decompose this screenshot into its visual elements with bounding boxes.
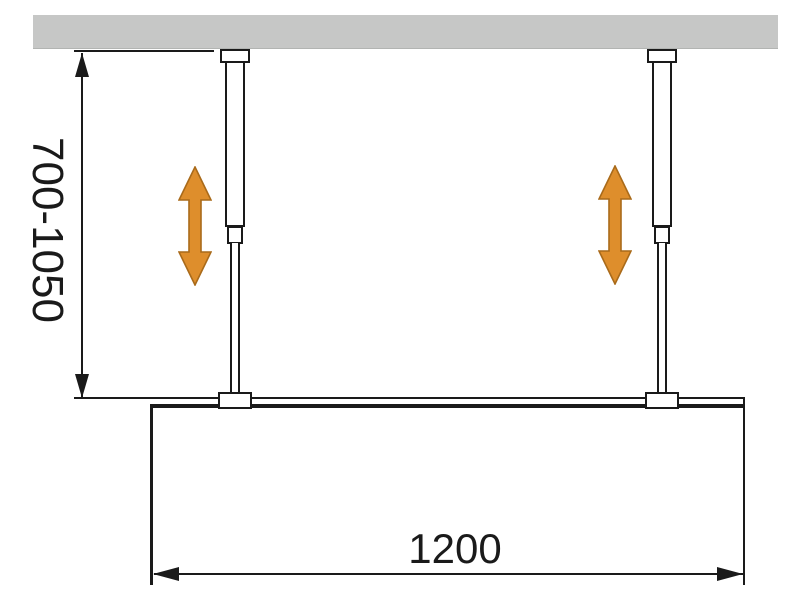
right-rod-ceiling-bracket	[647, 49, 677, 63]
ceiling-bar	[33, 15, 778, 49]
glass-left-edge	[150, 404, 153, 585]
left-rod-stem	[230, 243, 240, 393]
right-vertical-double-arrow-icon	[598, 165, 632, 285]
dimension-arrowhead-up-icon	[75, 53, 89, 77]
left-rod-upper-tube	[225, 61, 245, 227]
right-rod-collar	[654, 226, 670, 244]
glass-right-edge	[743, 397, 746, 585]
left-vertical-double-arrow-icon	[178, 166, 212, 286]
shower-screen-installation-diagram: 700-1050 1200	[0, 0, 800, 599]
right-rod-stem	[657, 243, 667, 393]
width-dimension-label: 1200	[408, 525, 501, 573]
dimension-arrowhead-down-icon	[75, 374, 89, 398]
dimension-arrowhead-right-icon	[717, 567, 743, 581]
right-rod-glass-clamp	[645, 392, 679, 409]
left-rod-ceiling-bracket	[220, 49, 250, 63]
dimension-arrowhead-left-icon	[153, 567, 179, 581]
height-dimension-line	[81, 53, 83, 398]
width-dimension-line	[154, 573, 744, 575]
left-rod-glass-clamp	[218, 392, 252, 409]
height-dimension-label: 700-1050	[22, 137, 72, 323]
left-rod-collar	[227, 226, 243, 244]
right-rod-upper-tube	[652, 61, 672, 227]
ceiling-extension-line	[74, 50, 214, 52]
